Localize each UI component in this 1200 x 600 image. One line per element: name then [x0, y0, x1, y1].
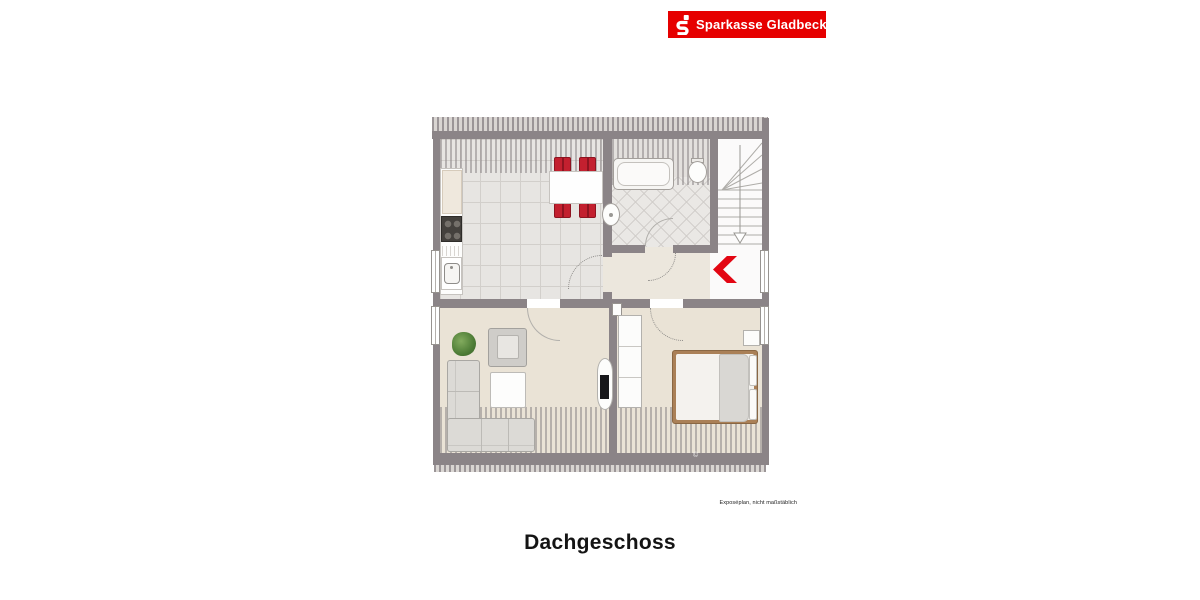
- wall-mid-3: [683, 299, 762, 308]
- stove-icon: [441, 216, 462, 242]
- dining-chair-icon: [554, 203, 571, 218]
- wall-kitchen-right: [603, 139, 612, 257]
- wall-kitchen-right-stub: [603, 292, 612, 299]
- sparkasse-s-icon: [675, 15, 690, 35]
- coffee-table-icon: [490, 372, 526, 408]
- dining-chair-icon: [554, 157, 571, 172]
- tv-icon: [600, 375, 609, 399]
- floor-plan: ©: [430, 117, 770, 472]
- dining-chair-icon: [579, 203, 596, 218]
- kitchen-cabinet: [442, 170, 462, 214]
- dining-table-icon: [549, 171, 603, 204]
- wardrobe-icon: [618, 315, 642, 408]
- wall-mid-2: [560, 299, 650, 308]
- toilet-icon: [688, 161, 707, 183]
- wall-bath-bottom-1: [603, 245, 645, 253]
- landing-window: [760, 250, 769, 293]
- wall-right-2: [762, 293, 769, 306]
- page: Sparkasse Gladbeck: [0, 0, 1200, 600]
- kitchen-sink-icon: [441, 257, 462, 290]
- brand-name: Sparkasse Gladbeck: [696, 17, 827, 32]
- wall-bath-bottom-2: [673, 245, 718, 253]
- bed-pillow: [749, 389, 757, 420]
- bedroom-window: [760, 306, 769, 345]
- watermark: ©: [693, 450, 759, 460]
- stairs-icon: [718, 139, 762, 247]
- wall-mid-1: [433, 299, 527, 308]
- bathtub-icon: [613, 158, 674, 190]
- bed-blanket: [719, 354, 749, 422]
- stairs-down-arrow: [734, 233, 746, 243]
- kitchen-window: [431, 250, 440, 293]
- bed-pillow: [749, 355, 757, 386]
- living-window: [431, 306, 440, 345]
- wall-right-3: [762, 345, 769, 465]
- roof-hatch-bottom-outer: [434, 465, 766, 472]
- wall-left-1: [433, 131, 440, 250]
- wall-right-1: [762, 118, 769, 250]
- brand-bar: Sparkasse Gladbeck: [668, 11, 826, 38]
- dining-chair-icon: [579, 157, 596, 172]
- plan-disclaimer: Exposéplan, nicht maßstäblich: [430, 500, 797, 506]
- sofa-horizontal: [447, 418, 535, 452]
- drainer-icon: [442, 246, 461, 256]
- roof-hatch-top-outer: [432, 117, 768, 131]
- wall-top: [432, 131, 768, 139]
- nightstand-icon: [743, 330, 760, 346]
- floor-title: Dachgeschoss: [0, 531, 1200, 555]
- bed-icon: [672, 350, 758, 424]
- wall-left-3: [433, 345, 440, 465]
- wall-bath-stairs: [710, 139, 718, 247]
- bath-sink-icon: [602, 203, 620, 226]
- armchair-icon: [488, 328, 527, 367]
